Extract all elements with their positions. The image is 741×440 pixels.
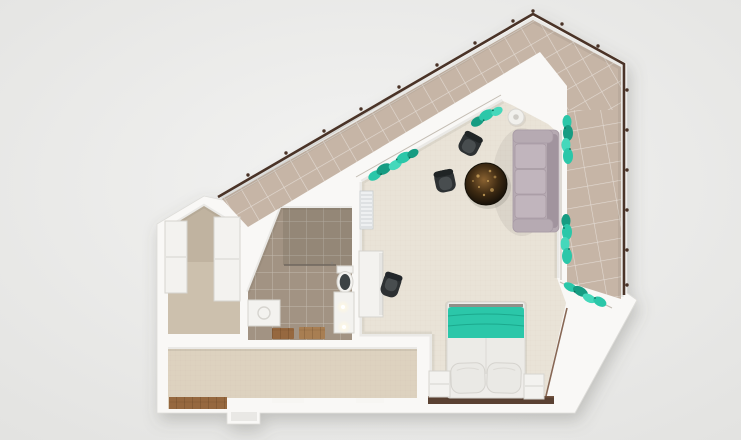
shower-glass-handle [331,262,334,265]
railing-post [359,107,362,110]
railing-post [531,9,534,12]
railing-post [625,88,628,91]
apartment-floorplan-svg [0,0,741,440]
coffee-table [465,163,507,205]
railing-post [625,168,628,171]
table-marble-fleck [489,170,492,173]
railing-post [246,173,249,176]
sofa-cushion [515,170,546,195]
table-marble-fleck [494,176,497,179]
plant-detail [563,227,565,229]
table-marble-fleck [472,180,474,182]
entrance-door-niche [231,412,257,421]
sofa-armrest [513,130,553,143]
railing-post [625,248,628,251]
vanity-light-bulb [341,305,345,309]
door-sill [272,398,304,403]
plant [563,148,573,164]
table-marble-fleck [476,174,479,177]
pillow [450,362,485,393]
shower-area [283,208,352,265]
plant-detail [568,248,570,250]
washing-machine [248,300,280,326]
railing-post [284,151,287,154]
vanity-light-bulb [342,325,346,329]
coffee-table-top [465,163,507,205]
bath-mat-slats [272,328,294,339]
sofa-cushion [515,144,546,169]
double-bed [447,302,525,398]
railing-post [625,283,628,286]
bed-foot-rail [449,304,523,307]
pillow [486,362,521,393]
plant-detail [564,127,566,129]
toilet-lid [340,274,351,290]
bed-pillow [486,362,521,393]
table-marble-fleck [478,186,480,188]
bed-blanket [448,307,524,338]
wardrobe-room [165,206,240,334]
railing-post [435,63,438,66]
railing-post [560,22,563,25]
bed-pillow [450,362,485,393]
sofa [513,130,559,232]
sofa-cushion [515,195,546,218]
railing-post [625,128,628,131]
railing-post [322,129,325,132]
railing-post [397,85,400,88]
railing-post [596,44,599,47]
railing-post [473,41,476,44]
floorplan-render [0,0,741,440]
sofa-backrest [547,134,558,228]
plant [562,248,572,264]
table-marble-fleck [483,194,485,196]
railing-post [511,19,514,22]
plant-detail [569,148,571,150]
table-marble-fleck [487,180,489,182]
sofa-armrest [513,219,553,232]
bath-mat-slats [299,327,325,339]
door-sill [356,398,384,403]
table-marble-fleck [490,188,494,192]
railing-post [625,208,628,211]
lamp-finial [513,114,519,120]
entry-wood-planks [169,397,227,409]
balcony-tile-grid-right [567,110,621,299]
